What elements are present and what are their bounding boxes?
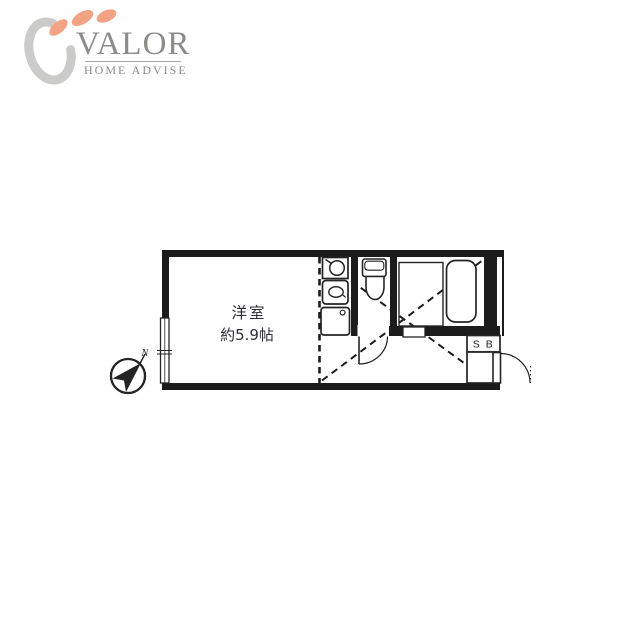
washing-machine-icon: [321, 308, 350, 336]
north-label: N: [141, 348, 150, 359]
sink-icon: [323, 281, 349, 305]
stove-icon: [323, 258, 349, 279]
shoebox-cabinet: [467, 352, 497, 383]
shoebox-label: S B: [473, 339, 494, 351]
bathroom-floor-outline: [399, 263, 443, 327]
bathtub-icon: [447, 261, 477, 323]
room-size-label: 約5.9帖: [220, 326, 274, 344]
floorplan-drawing: S B 洋室 約5.9帖 N: [0, 0, 640, 640]
toilet-icon: [363, 259, 387, 300]
floorplan-page: VALOR HOME ADVISE: [0, 0, 640, 640]
entrance-door: [493, 353, 531, 384]
window-symbol: [157, 318, 172, 383]
compass-icon: N: [111, 348, 150, 393]
room-label: 洋室: [231, 304, 266, 322]
bathroom-threshold: [403, 327, 425, 337]
